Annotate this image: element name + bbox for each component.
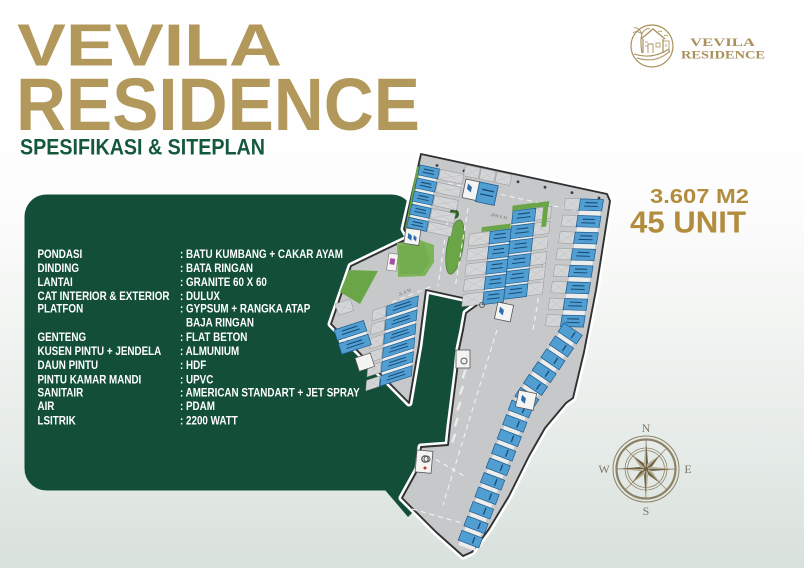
svg-text:E: E	[684, 462, 691, 476]
svg-text:: BATU KUMBANG + CAKAR AYAM: : BATU KUMBANG + CAKAR AYAM	[180, 248, 343, 261]
svg-text:RESIDENCE: RESIDENCE	[681, 48, 765, 62]
svg-text:AIR: AIR	[37, 400, 54, 413]
svg-text:: UPVC: : UPVC	[180, 374, 213, 387]
svg-text:: PDAM: : PDAM	[180, 400, 215, 413]
svg-text:LSITRIK: LSITRIK	[37, 414, 75, 427]
svg-text:: DULUX: : DULUX	[180, 290, 220, 303]
svg-text:: GYPSUM + RANGKA ATAP: : GYPSUM + RANGKA ATAP	[180, 303, 310, 316]
svg-text:DAUN PINTU: DAUN PINTU	[37, 359, 98, 372]
svg-text:PINTU KAMAR MANDI: PINTU KAMAR MANDI	[37, 374, 141, 387]
svg-text:SANITAIR: SANITAIR	[37, 387, 83, 400]
svg-text:: ALMUNIUM: : ALMUNIUM	[180, 345, 239, 358]
svg-text:GENTENG: GENTENG	[37, 331, 86, 344]
svg-text:PLATFON: PLATFON	[37, 303, 83, 316]
svg-text:PONDASI: PONDASI	[37, 248, 82, 261]
svg-text:LANTAI: LANTAI	[37, 276, 72, 289]
svg-text:SPESIFIKASI & SITEPLAN: SPESIFIKASI & SITEPLAN	[20, 135, 265, 160]
svg-text:KUSEN PINTU + JENDELA: KUSEN PINTU + JENDELA	[37, 345, 161, 358]
svg-text:: GRANITE 60 X 60: : GRANITE 60 X 60	[180, 276, 267, 289]
svg-text:S: S	[643, 504, 650, 518]
svg-text:RESIDENCE: RESIDENCE	[16, 63, 420, 146]
svg-text:: AMERICAN STANDART + JET SPRA: : AMERICAN STANDART + JET SPRAY	[180, 387, 360, 400]
svg-text:BAJA RINGAN: BAJA RINGAN	[186, 317, 254, 330]
svg-text:: 2200 WATT: : 2200 WATT	[180, 414, 238, 427]
svg-text:: BATA RINGAN: : BATA RINGAN	[180, 262, 253, 275]
svg-text:DINDING: DINDING	[37, 262, 79, 275]
svg-text:W: W	[598, 462, 610, 476]
svg-text:45 UNIT: 45 UNIT	[630, 205, 746, 240]
svg-text:: HDF: : HDF	[180, 359, 206, 372]
svg-text:CAT INTERIOR & EXTERIOR: CAT INTERIOR & EXTERIOR	[37, 290, 169, 303]
svg-text:N: N	[642, 421, 651, 435]
svg-text:: FLAT BETON: : FLAT BETON	[180, 331, 247, 344]
